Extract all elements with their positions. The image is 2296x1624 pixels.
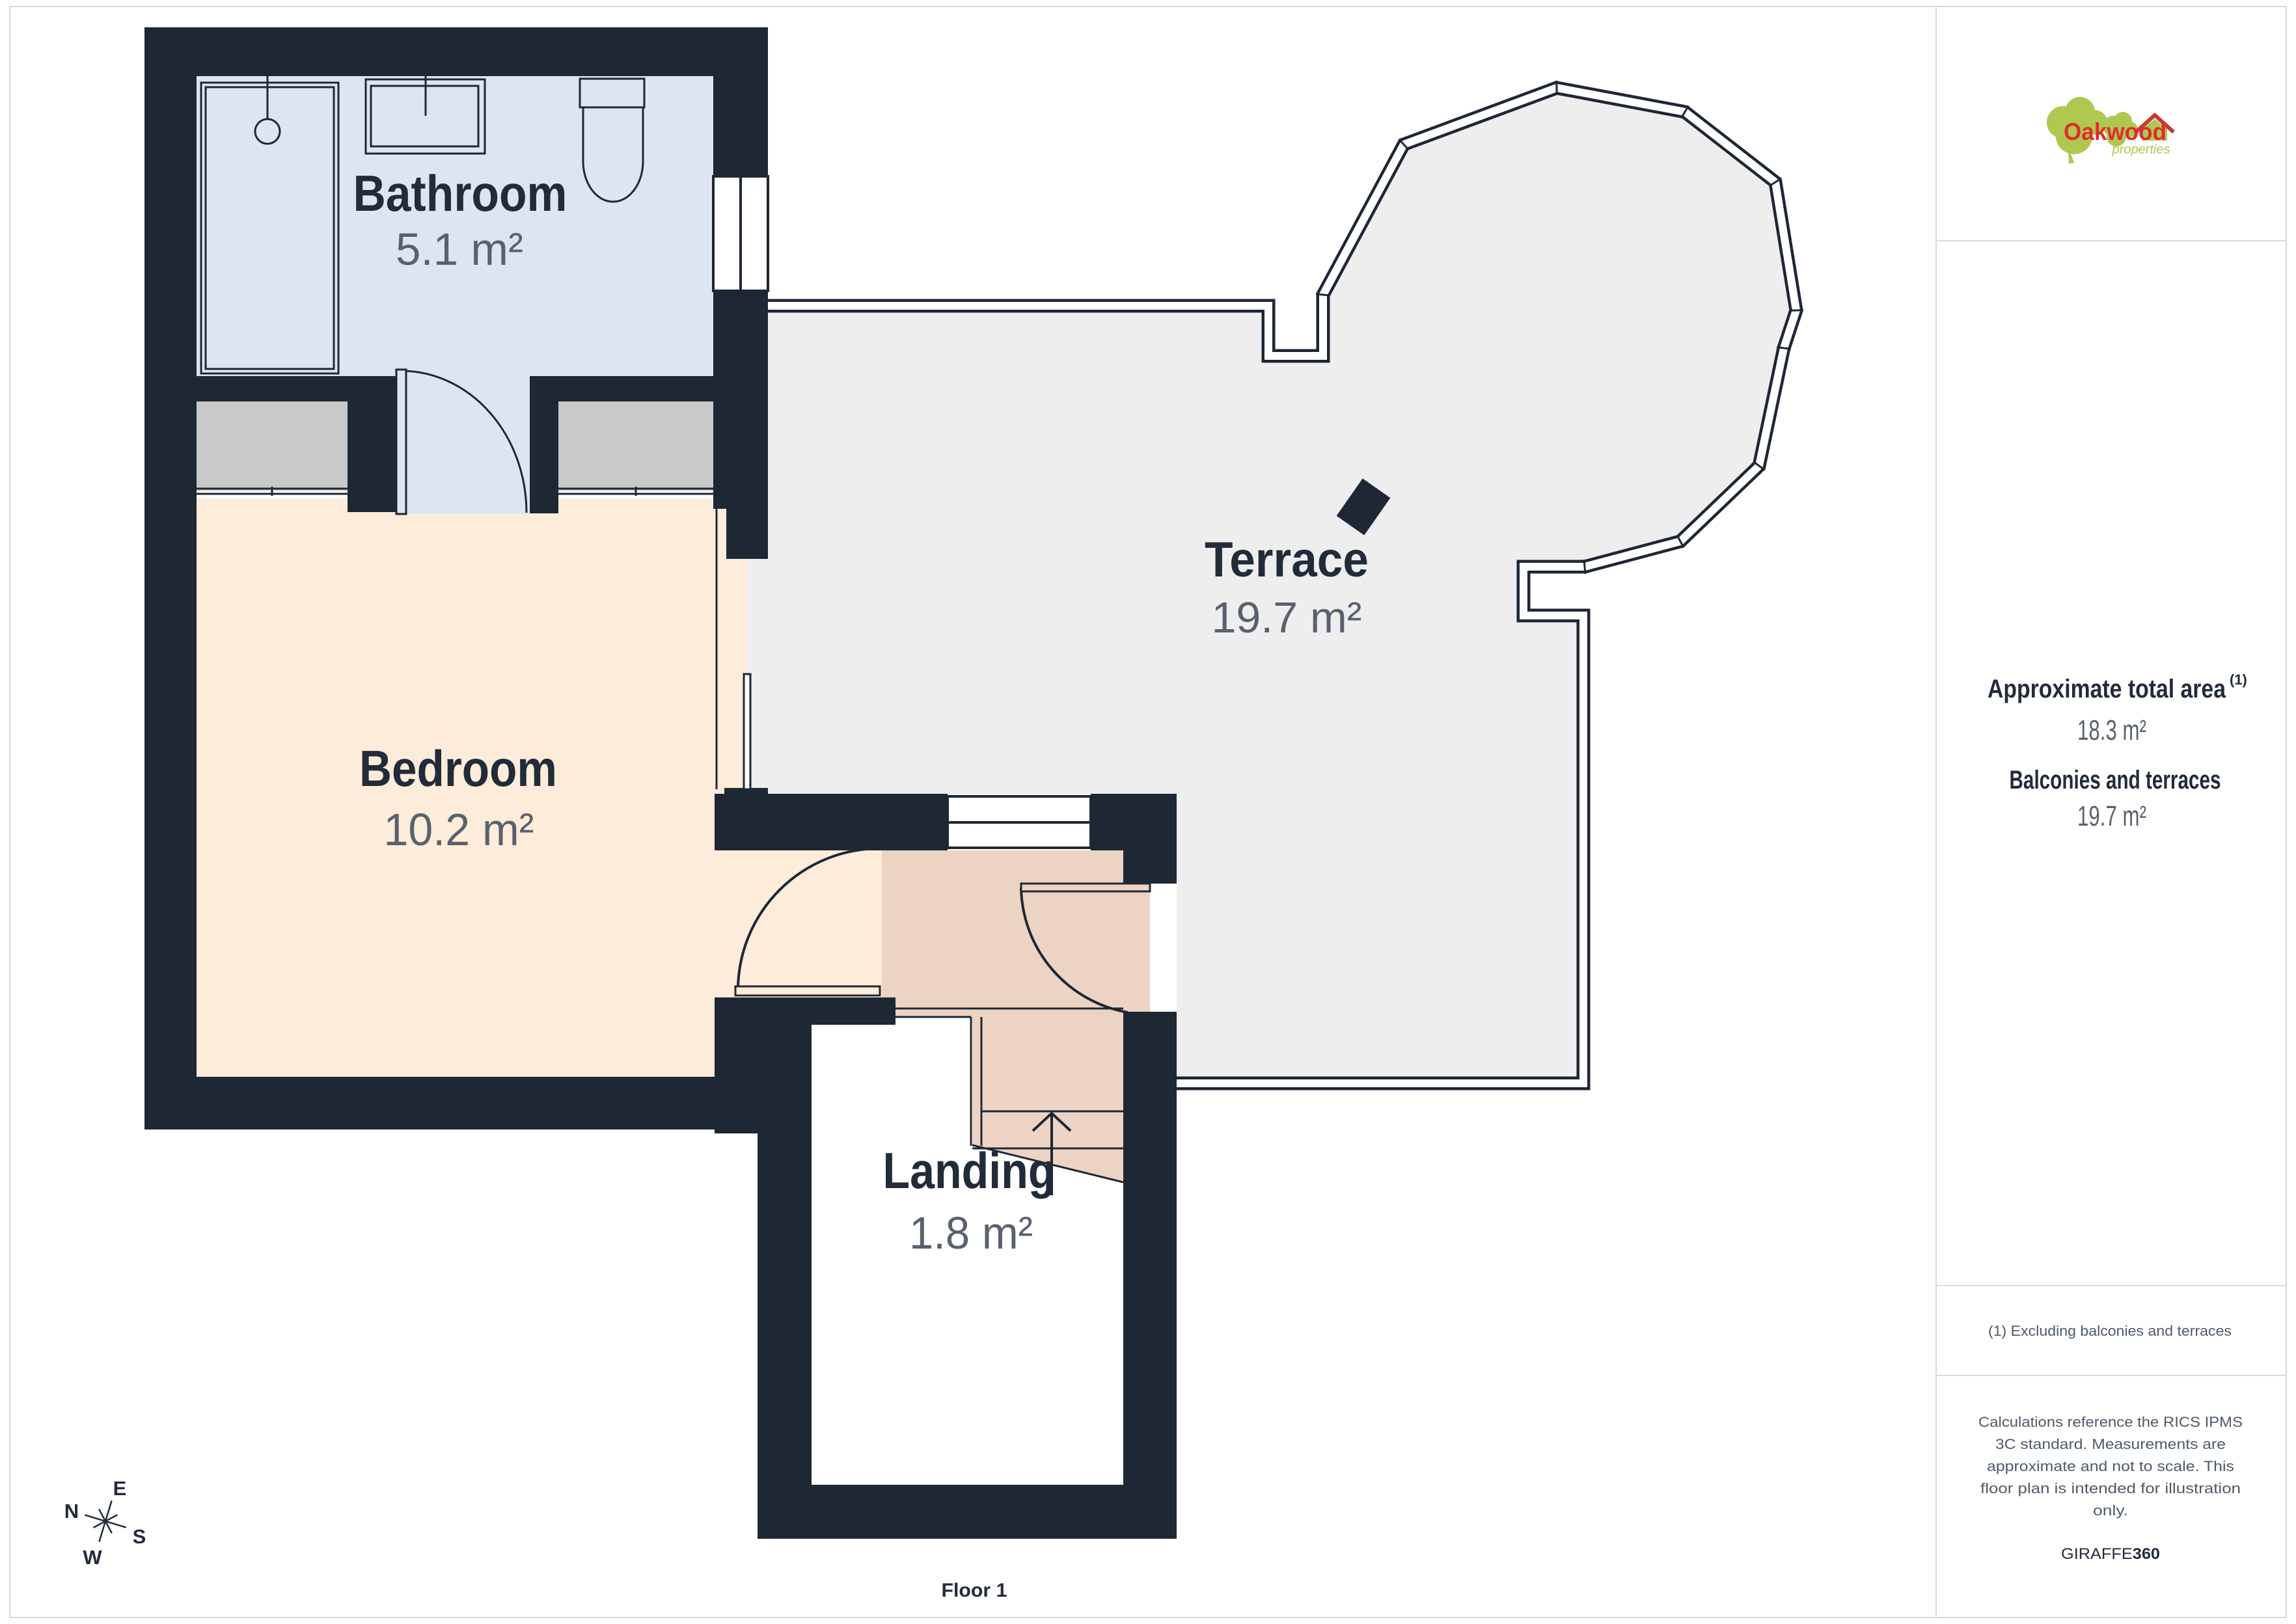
svg-text:(1): (1) [2230, 671, 2247, 688]
svg-text:N: N [64, 1500, 79, 1522]
svg-text:(1) Excluding balconies and te: (1) Excluding balconies and terraces [1988, 1323, 2232, 1339]
svg-text:approximate and not to scale.: approximate and not to scale. This [1987, 1458, 2234, 1474]
svg-text:19.7 m²: 19.7 m² [1212, 593, 1362, 642]
svg-text:Floor 1: Floor 1 [942, 1580, 1007, 1601]
svg-text:Bedroom: Bedroom [359, 740, 557, 797]
svg-text:Landing: Landing [883, 1142, 1056, 1199]
svg-text:19.7 m²: 19.7 m² [2077, 800, 2146, 832]
svg-text:only.: only. [2093, 1502, 2128, 1519]
svg-text:18.3 m²: 18.3 m² [2077, 714, 2146, 746]
svg-text:5.1 m²: 5.1 m² [396, 224, 523, 275]
svg-text:floor plan is intended for ill: floor plan is intended for illustration [1980, 1480, 2241, 1496]
svg-text:Terrace: Terrace [1205, 532, 1369, 588]
svg-text:Oakwood: Oakwood [2064, 118, 2166, 145]
svg-text:S: S [133, 1525, 146, 1548]
svg-text:E: E [113, 1477, 127, 1500]
svg-text:GIRAFFE360: GIRAFFE360 [2061, 1545, 2160, 1563]
svg-text:properties: properties [2112, 142, 2170, 157]
svg-text:10.2 m²: 10.2 m² [384, 804, 534, 855]
svg-text:Bathroom: Bathroom [353, 165, 567, 222]
svg-text:W: W [83, 1546, 102, 1569]
svg-text:Balconies and terraces: Balconies and terraces [2010, 766, 2221, 794]
svg-text:1.8 m²: 1.8 m² [909, 1208, 1033, 1258]
svg-text:Calculations reference the RIC: Calculations reference the RICS IPMS [1978, 1414, 2243, 1430]
svg-text:Approximate total area: Approximate total area [1988, 675, 2226, 703]
svg-text:3C standard. Measurements are: 3C standard. Measurements are [1995, 1436, 2226, 1452]
